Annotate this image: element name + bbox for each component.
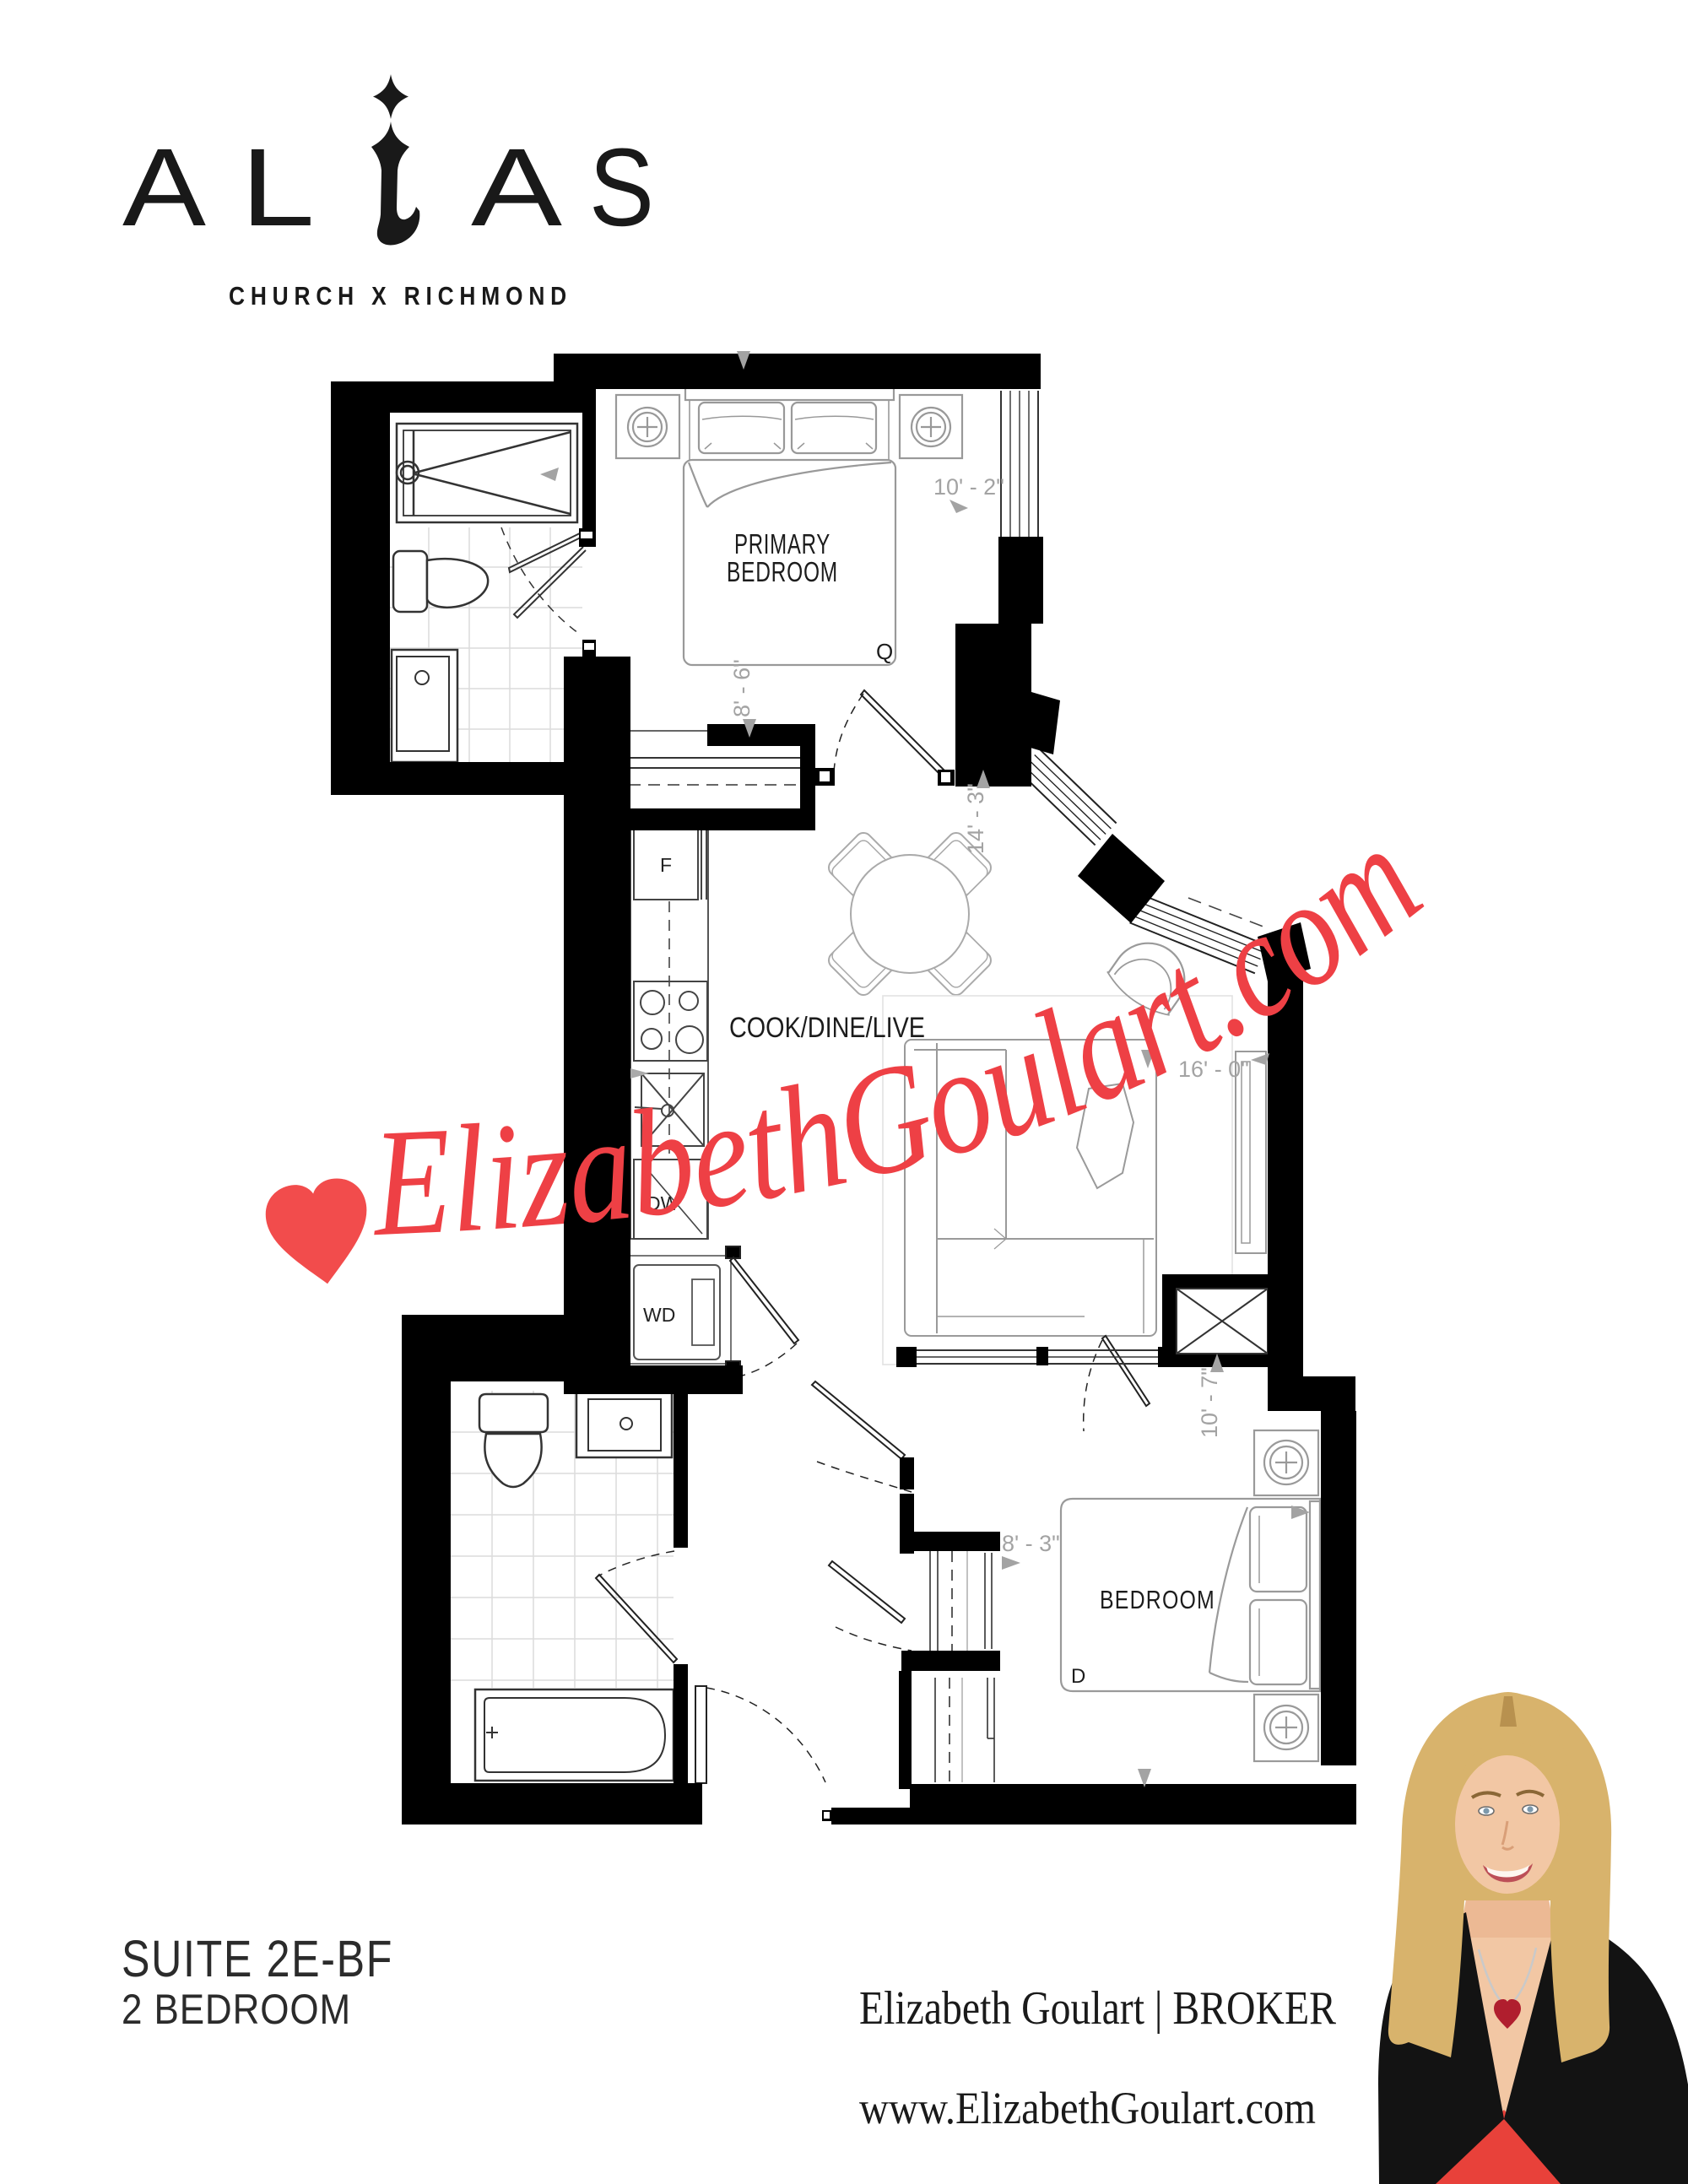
svg-text:S: S [589, 125, 654, 249]
svg-text:8' - 3": 8' - 3" [1002, 1531, 1060, 1556]
svg-text:D: D [1071, 1665, 1085, 1688]
svg-text:L: L [241, 125, 315, 249]
svg-text:PRIMARY: PRIMARY [734, 528, 830, 560]
svg-text:A: A [122, 125, 207, 249]
svg-text:Elizabeth Goulart | BROKER: Elizabeth Goulart | BROKER [859, 1982, 1337, 2035]
svg-text:Q: Q [876, 639, 893, 664]
svg-text:CHURCH X RICHMOND: CHURCH X RICHMOND [229, 281, 572, 311]
svg-text:10' - 2": 10' - 2" [933, 474, 1004, 500]
svg-text:A: A [471, 125, 563, 249]
svg-text:BEDROOM: BEDROOM [1100, 1585, 1215, 1614]
svg-text:10' - 7": 10' - 7" [1197, 1367, 1222, 1438]
svg-text:F: F [660, 854, 672, 876]
svg-text:8' - 6": 8' - 6" [729, 659, 755, 717]
svg-text:BEDROOM: BEDROOM [727, 556, 838, 587]
svg-text:www.ElizabethGoulart.com: www.ElizabethGoulart.com [859, 2083, 1316, 2133]
svg-text:WD: WD [643, 1304, 675, 1326]
svg-text:SUITE 2E-BF: SUITE 2E-BF [122, 1930, 393, 1987]
svg-text:2 BEDROOM: 2 BEDROOM [122, 1986, 351, 2033]
svg-text:14' - 3": 14' - 3" [963, 783, 988, 854]
